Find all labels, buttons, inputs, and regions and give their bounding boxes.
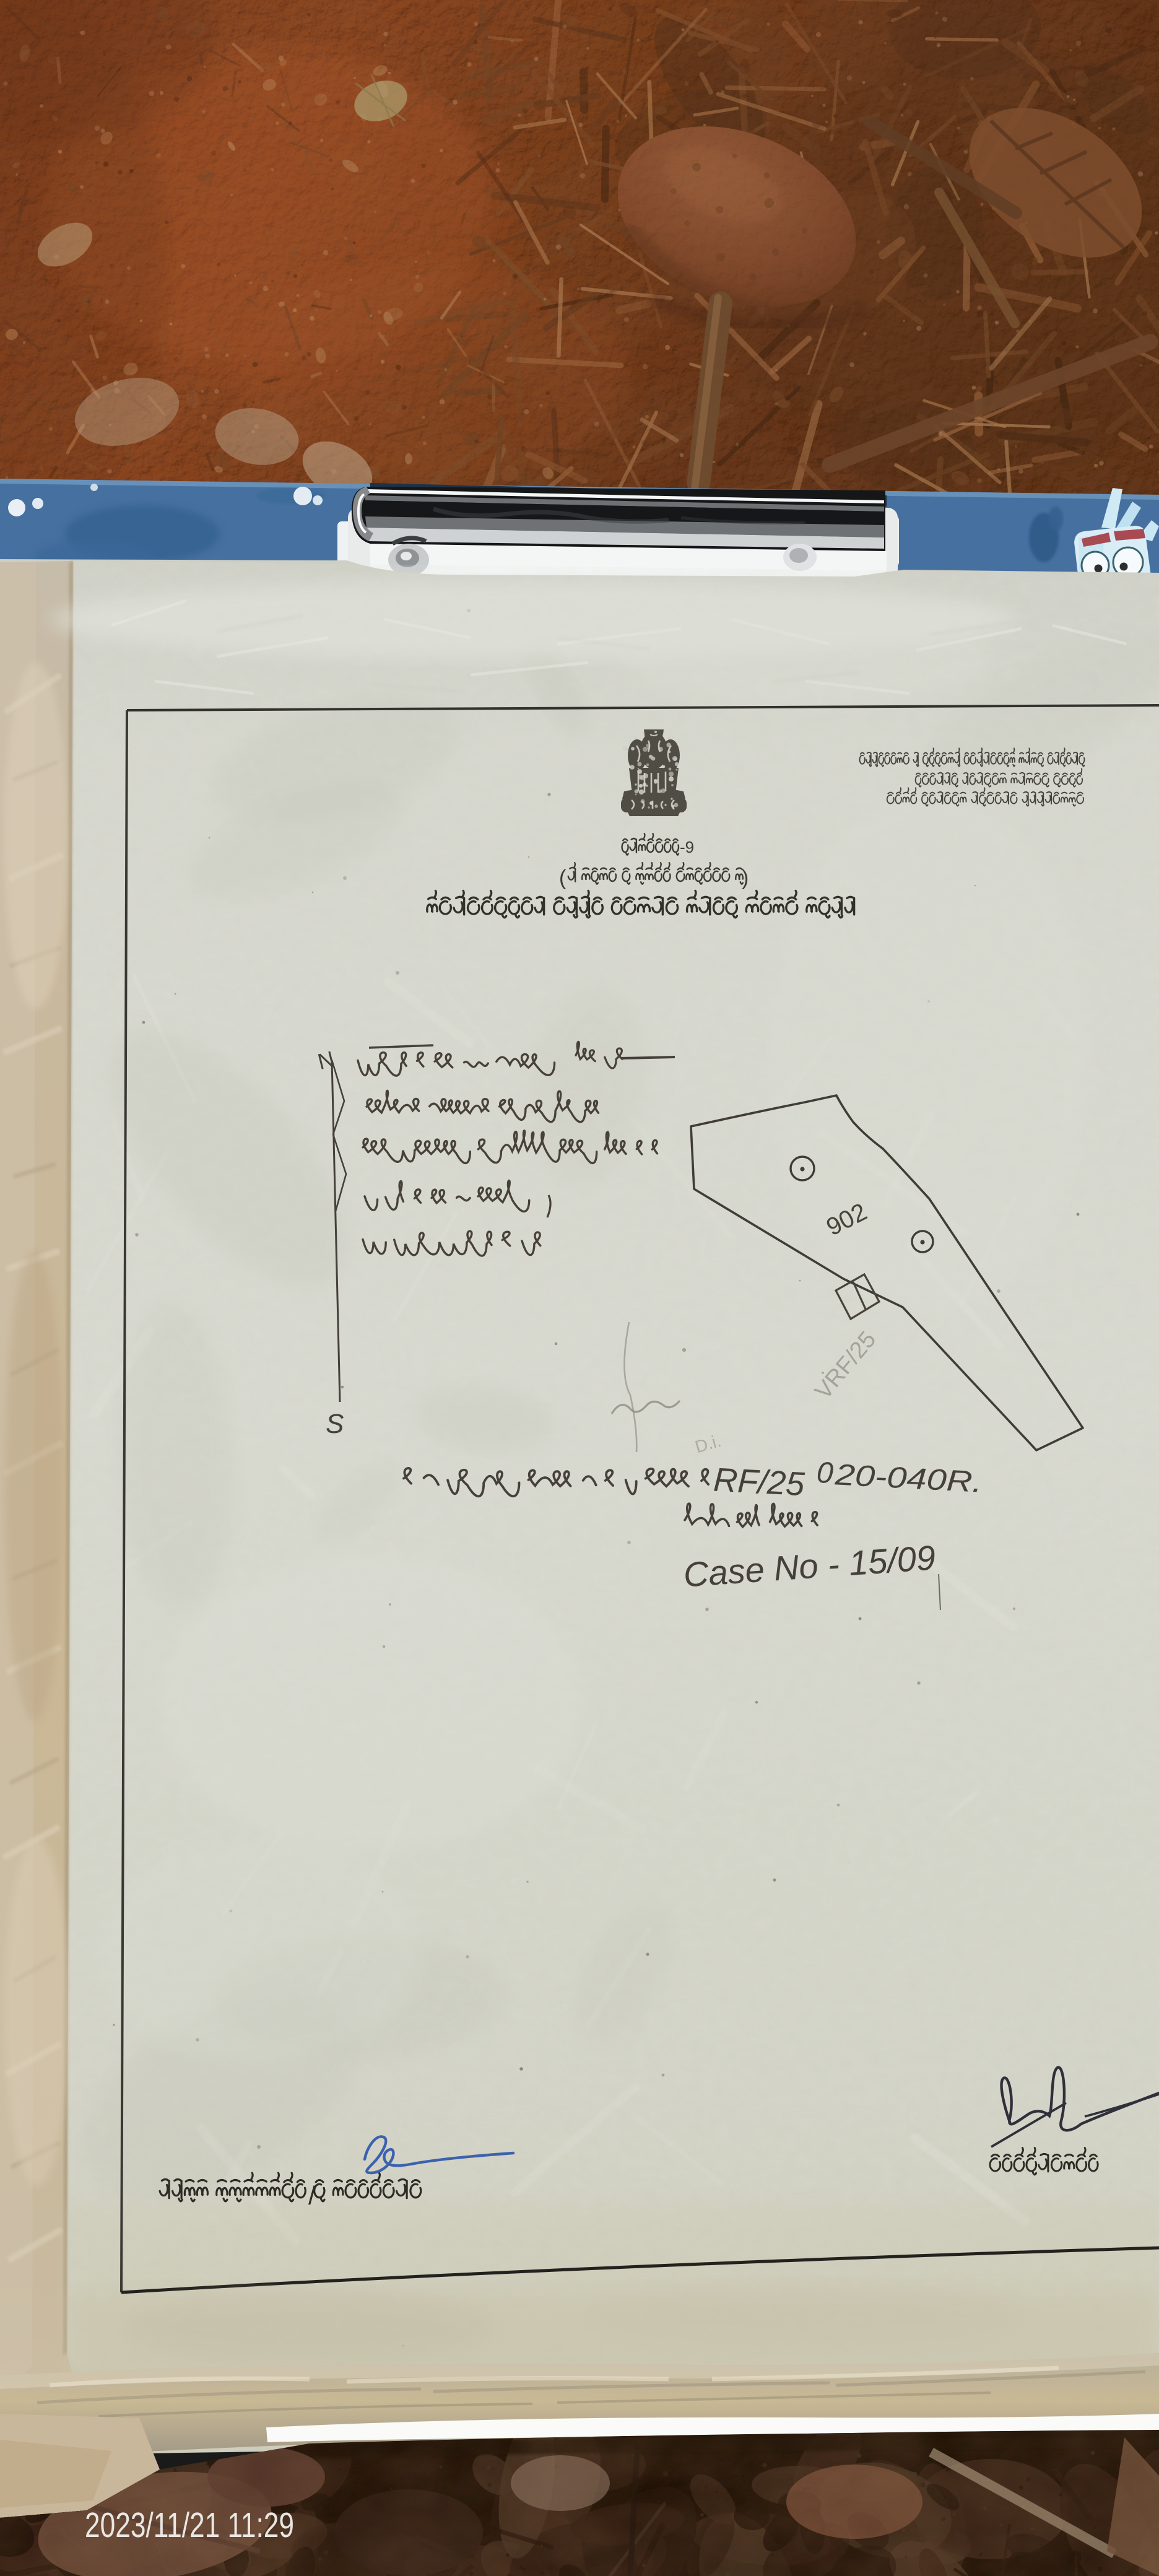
svg-text:2023/11/21 11:29: 2023/11/21 11:29 [85, 2505, 294, 2545]
svg-text:(: ( [559, 866, 566, 890]
svg-text:RF/25: RF/25 [713, 1461, 806, 1503]
svg-text:/: / [308, 2181, 316, 2210]
svg-text:): ) [742, 866, 749, 890]
svg-text:-9: -9 [680, 838, 694, 856]
svg-text:S: S [326, 1409, 344, 1439]
svg-text:0: 0 [816, 1456, 835, 1490]
